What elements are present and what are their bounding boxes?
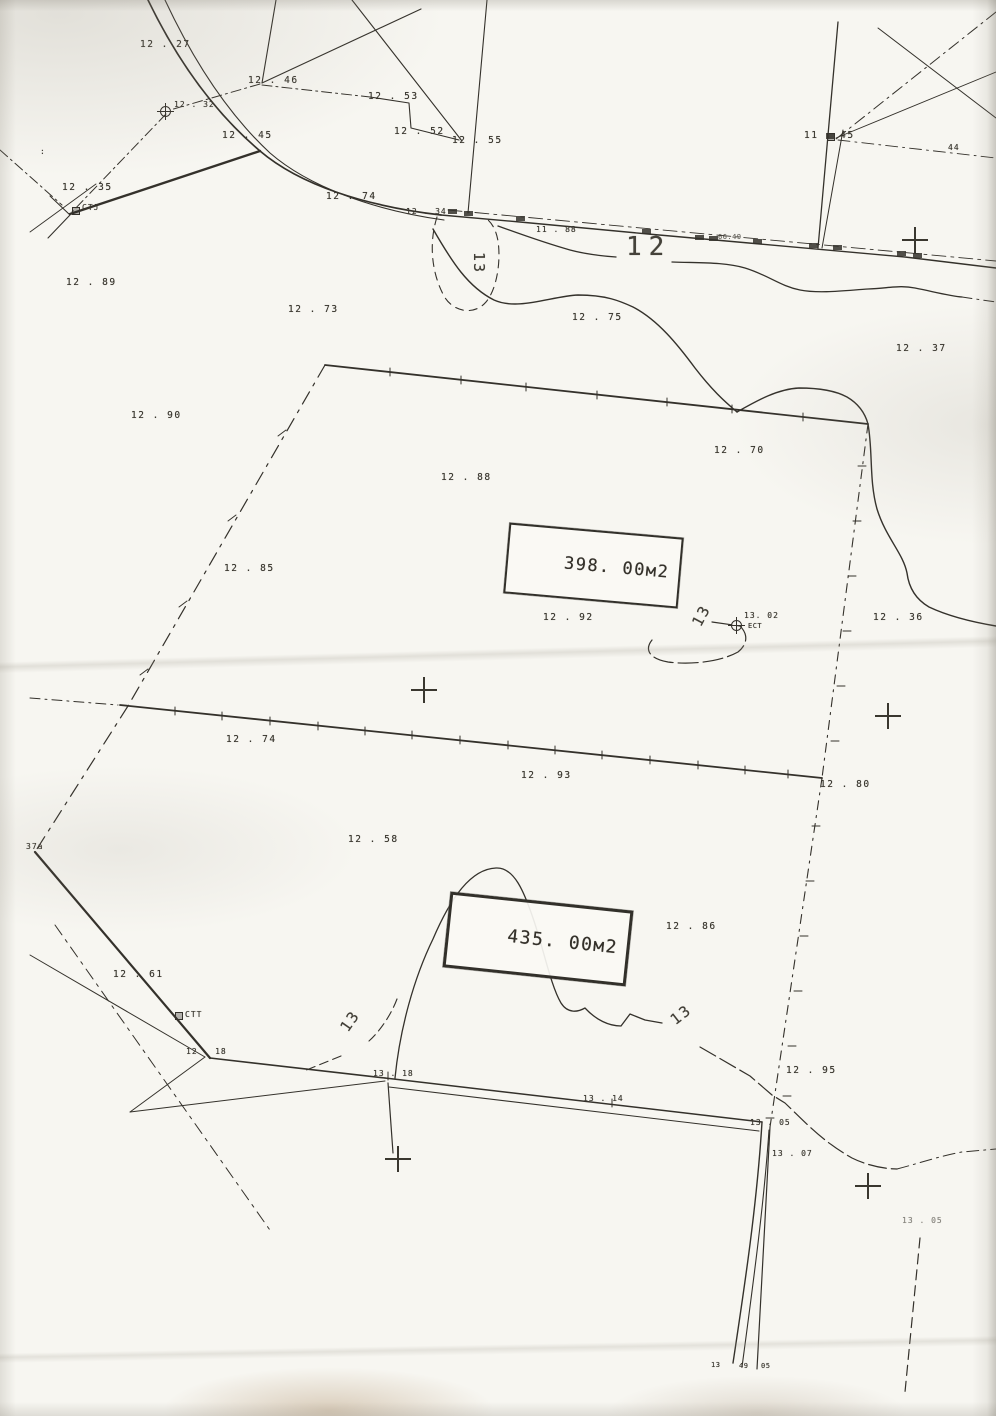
map-linework (0, 0, 996, 1416)
spot-elevation-label: 12 . 70 (714, 446, 765, 456)
survey-marker-text: СТЈ (82, 204, 99, 212)
spot-elevation-label: 13 . 07 (772, 1150, 813, 1158)
parcel-boundary (822, 424, 868, 778)
spot-elevation-label: 49 (739, 1363, 748, 1370)
spot-elevation-label: 11 . 45 (804, 131, 855, 141)
grid-cross-mark (411, 677, 437, 703)
contour-line-12 (672, 262, 962, 297)
spot-elevation-label: 13 . 18 (373, 1070, 414, 1078)
spot-elevation-label: 05 (761, 1363, 770, 1370)
spot-elevation-label: 12 . 93 (521, 771, 572, 781)
post-marker-icon (72, 207, 80, 215)
spot-elevation-label: 12 . 55 (452, 136, 503, 146)
spot-elevation-label: 37a (26, 843, 43, 851)
benchmark-marker-icon (731, 620, 742, 631)
grid-cross-mark (385, 1146, 411, 1172)
spot-elevation-label: 12 . 90 (131, 411, 182, 421)
spot-elevation-label: 12 . 85 (224, 564, 275, 574)
spot-elevation-label: 13 . 05 (902, 1217, 943, 1225)
grid-cross-mark (855, 1173, 881, 1199)
contour-label-12: 12 (626, 234, 671, 260)
contour-label-13: 13 (471, 252, 486, 274)
road-edge (385, 1078, 762, 1122)
spot-elevation-label: 12 . 46 (248, 76, 299, 86)
spot-elevation-label: 12 . 45 (222, 131, 273, 141)
spot-elevation-label: 13 (711, 1362, 720, 1369)
survey-marker-text: 12 . 32 (174, 101, 215, 109)
road-edge (742, 1130, 769, 1367)
grid-cross-mark (875, 703, 901, 729)
spot-elevation-label: 11 . 88 (536, 226, 577, 234)
fence-post-symbols (448, 133, 922, 258)
road-edge (389, 1087, 759, 1131)
spot-elevation-label: 66.49 (718, 234, 742, 241)
spot-elevation-label: 12 . 61 (113, 970, 164, 980)
spot-elevation-label: 12 . 73 (288, 305, 339, 315)
parcel-area-text: 398. 00м2 (563, 553, 670, 582)
parcel-boundary (35, 852, 210, 1058)
spot-elevation-label: : (40, 148, 46, 156)
spot-elevation-label: 44 (948, 144, 960, 152)
parcel-boundary (35, 706, 128, 852)
spot-elevation-label: 12 . 36 (873, 613, 924, 623)
post-marker-icon (175, 1012, 183, 1020)
spot-elevation-label: 12 . 34 (406, 208, 447, 216)
parcel-area-text: 435. 00м2 (506, 926, 619, 958)
spot-elevation-label: 12 . 74 (326, 192, 377, 202)
spot-elevation-label: 12 . 86 (666, 922, 717, 932)
survey-marker-text: 13. 02 (744, 612, 779, 620)
road-edge (165, 0, 444, 220)
spot-elevation-label: 12 . 52 (394, 127, 445, 137)
spot-elevation-label: 12 . 95 (786, 1066, 837, 1076)
spot-elevation-label: 12 . 35 (62, 183, 113, 193)
survey-marker-text: ЕСТ (748, 623, 762, 630)
survey-marker-text: СТТ (185, 1011, 202, 1019)
spot-elevation-label: 12 . 53 (368, 92, 419, 102)
spot-elevation-label: 12 . 37 (896, 344, 947, 354)
parcel-area-box-398: 398. 00м2 (503, 523, 683, 609)
contour-line (868, 424, 996, 626)
spot-elevation-label: 13 . 14 (583, 1095, 624, 1103)
spot-elevation-label: 13 . 05 (750, 1119, 791, 1127)
spot-elevation-label: 12 . 27 (140, 40, 191, 50)
spot-elevation-label: 12 . 89 (66, 278, 117, 288)
scanned-survey-map-page: 398. 00м2 435. 00м2 12 . 2712 . 4612 . 5… (0, 0, 996, 1416)
benchmark-marker-icon (160, 106, 171, 117)
spot-elevation-label: 12 . 18 (186, 1048, 227, 1056)
spot-elevation-label: 12 . 58 (348, 835, 399, 845)
spot-elevation-label: 12 . 80 (820, 780, 871, 790)
grid-cross-mark (902, 227, 928, 253)
spot-elevation-label: 12 . 88 (441, 473, 492, 483)
spot-elevation-label: 12 . 92 (543, 613, 594, 623)
spot-elevation-label: 12 . 75 (572, 313, 623, 323)
parcel-boundary (210, 1058, 385, 1078)
spot-elevation-label: 12 . 74 (226, 735, 277, 745)
